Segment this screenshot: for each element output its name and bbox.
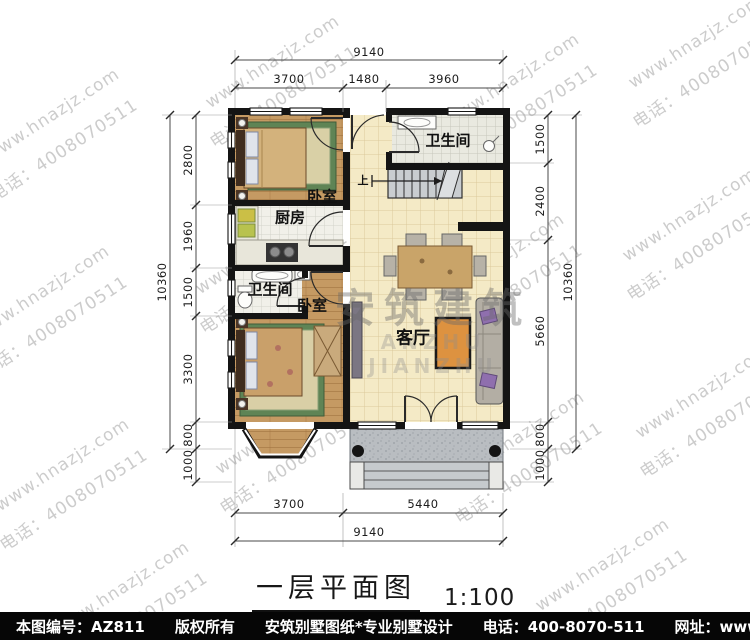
room-label-bath-top: 卫生间 — [425, 130, 470, 151]
porch-column — [352, 445, 364, 457]
window — [228, 162, 235, 178]
tv-stand — [352, 302, 362, 378]
dim-left-seg: 3300 — [181, 353, 195, 384]
porch-column — [489, 445, 501, 457]
window — [358, 422, 396, 429]
window — [228, 340, 235, 356]
footer-bar: 本图编号：AZ811 版权所有 安筑别墅图纸*专业别墅设计 电话：400-807… — [0, 612, 750, 640]
window — [250, 108, 282, 115]
dining-chair — [442, 234, 462, 246]
window — [228, 372, 235, 388]
dim-left-seg: 1500 — [181, 276, 195, 307]
kitchen-sink — [238, 209, 255, 222]
room-label-bath-left: 卫生间 — [247, 279, 292, 300]
drawing-title: 一层平面图 1:100 — [252, 566, 515, 613]
dim-right-seg: 800 — [533, 423, 547, 446]
dim-bottom-seg: 3700 — [273, 497, 304, 511]
dim-left-seg: 1000 — [181, 449, 195, 480]
drawing-title-text: 一层平面图 — [252, 566, 420, 613]
toilet — [484, 141, 495, 152]
dim-top-seg: 1480 — [348, 72, 379, 86]
dim-right-seg: 1000 — [533, 449, 547, 480]
dim-bottom-seg: 5440 — [407, 497, 438, 511]
drawing-scale: 1:100 — [444, 585, 515, 613]
window — [228, 280, 235, 296]
window — [448, 108, 476, 115]
dining-chair — [406, 288, 426, 300]
dim-right-seg: 2400 — [533, 185, 547, 216]
window — [228, 214, 235, 244]
pillow — [480, 373, 497, 389]
footer-drawing-no: 本图编号：AZ811 — [16, 616, 145, 637]
window — [290, 108, 322, 115]
dim-top-overall: 9140 — [353, 45, 384, 59]
dim-left-overall: 10360 — [155, 262, 169, 301]
room-label-bedroom-top: 卧室 — [307, 186, 337, 207]
window — [228, 132, 235, 148]
window — [462, 422, 498, 429]
coffee-table — [436, 318, 470, 368]
dim-right-overall: 10360 — [561, 262, 575, 301]
dim-bottom-overall: 9140 — [353, 525, 384, 539]
room-label-kitchen: 厨房 — [275, 207, 305, 228]
footer-copyright: 版权所有 — [175, 616, 235, 637]
dim-top-seg: 3700 — [273, 72, 304, 86]
dining-table — [398, 246, 472, 288]
dim-top-seg: 3960 — [428, 72, 459, 86]
entry-steps — [350, 462, 503, 489]
porch — [350, 429, 503, 489]
dim-left-seg: 1960 — [181, 220, 195, 251]
footer-phone: 电话：400-8070-511 — [483, 616, 645, 637]
room-label-bedroom-bottom: 卧室 — [297, 295, 327, 316]
dim-right-seg: 1500 — [533, 123, 547, 154]
dim-right-seg: 5660 — [533, 315, 547, 346]
dim-left-seg: 2800 — [181, 144, 195, 175]
dining-chair — [442, 288, 462, 300]
footer-website: 网址：www.hnazjz.com — [675, 616, 750, 637]
room-label-living: 客厅 — [396, 324, 430, 349]
footer-company: 安筑别墅图纸*专业别墅设计 — [265, 616, 453, 637]
dining-chair — [474, 256, 486, 276]
floor-plan-page: www.hnazjz.com电话：4008070511 www.hnazjz.c… — [0, 0, 750, 640]
bay-window — [244, 429, 316, 456]
floor-plan-drawing — [0, 0, 750, 640]
stairs-up-label: 上 — [358, 172, 369, 188]
dining-chair — [384, 256, 396, 276]
dining-chair — [406, 234, 426, 246]
dim-left-seg: 800 — [181, 423, 195, 446]
